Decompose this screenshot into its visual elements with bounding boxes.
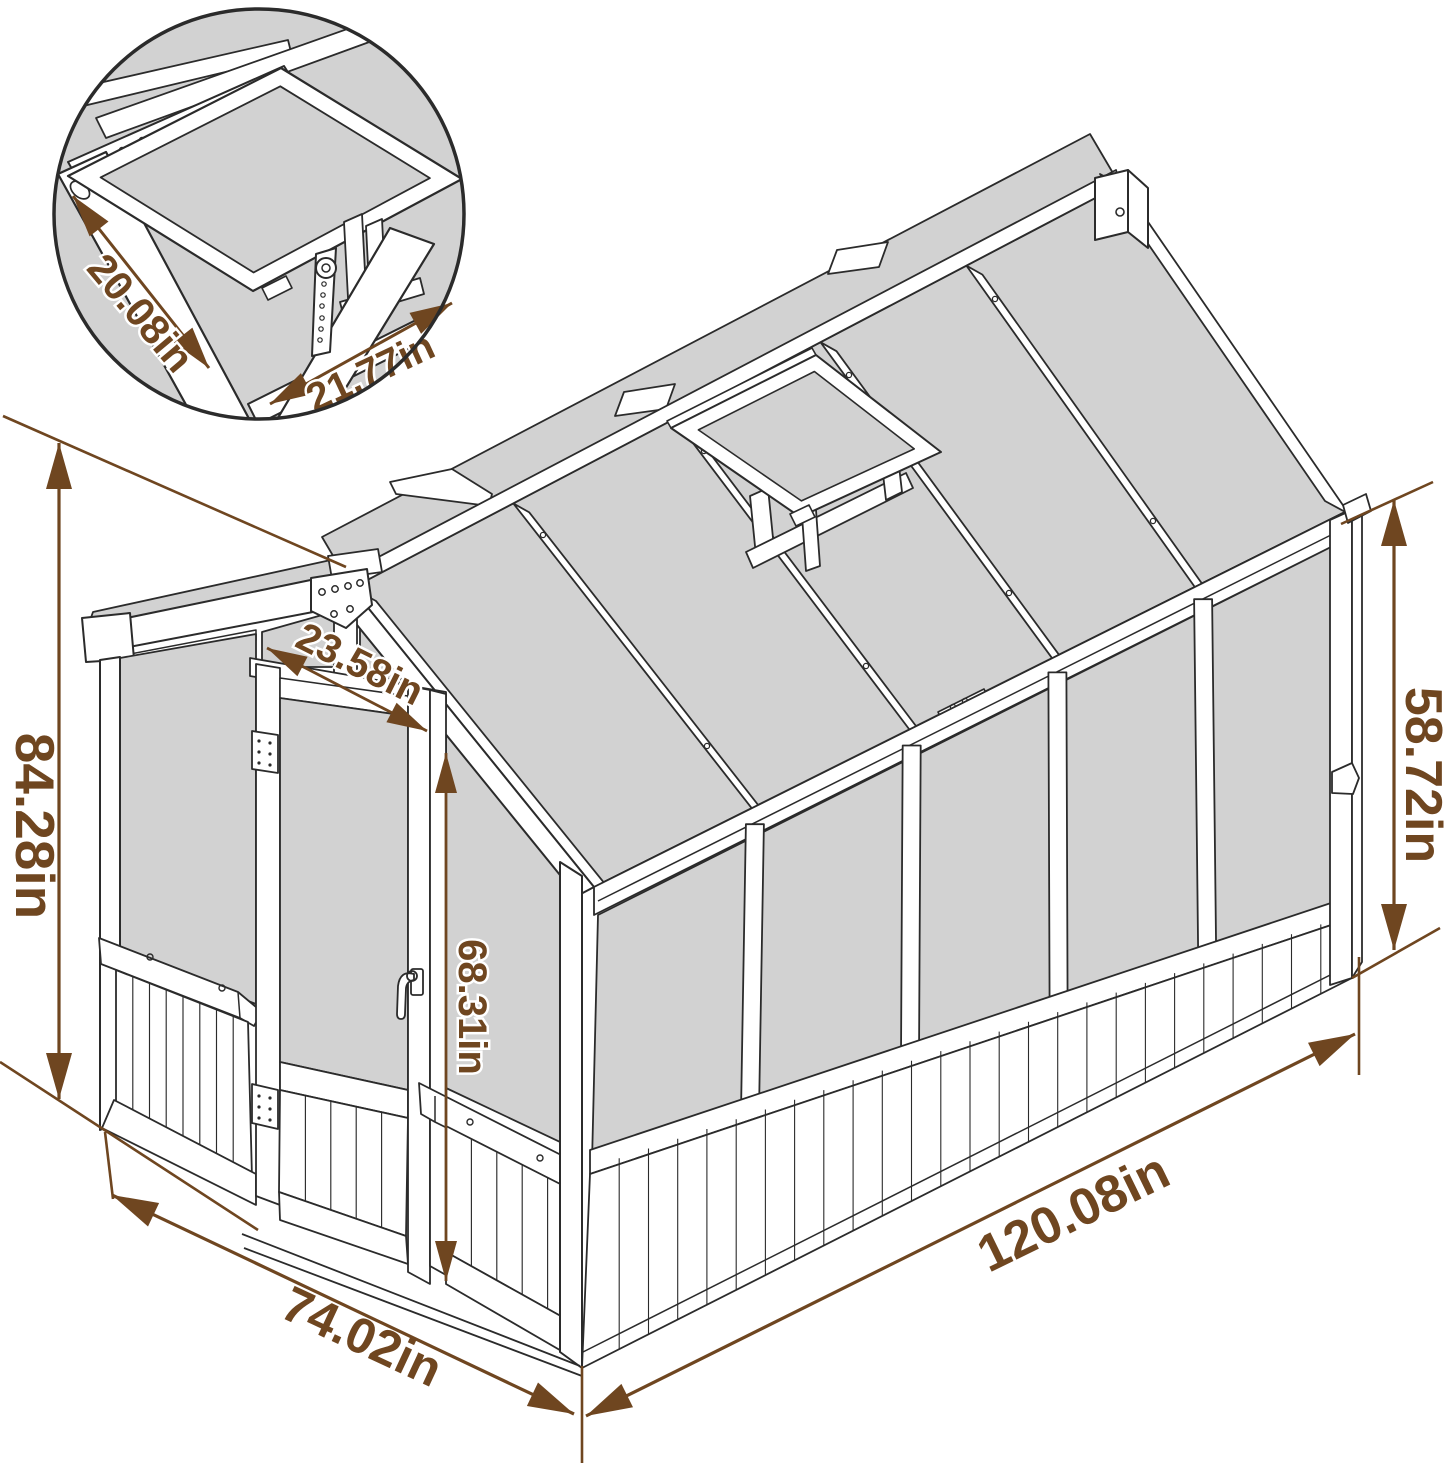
svg-text:84.28in: 84.28in: [4, 733, 66, 920]
svg-text:58.72in: 58.72in: [1394, 687, 1445, 863]
svg-text:68.31in: 68.31in: [450, 939, 494, 1075]
